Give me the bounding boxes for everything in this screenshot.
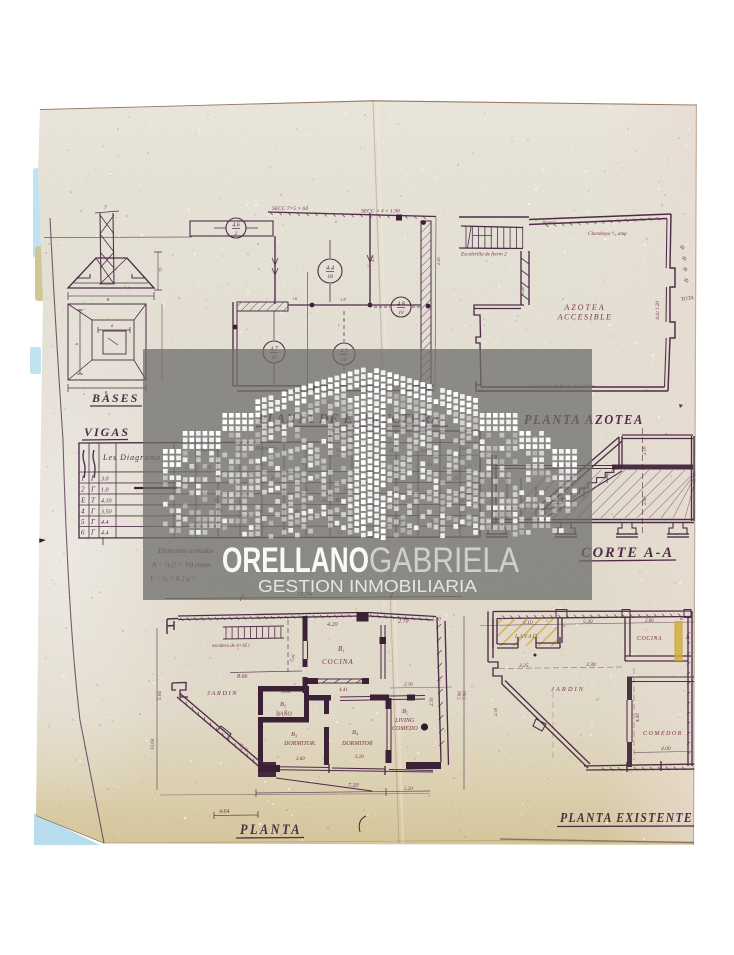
svg-text:3.0: 3.0 <box>100 477 109 483</box>
svg-text:COMEDOR: COMEDOR <box>643 731 683 737</box>
svg-text:5.10: 5.10 <box>523 620 533 626</box>
svg-text:BASES: BASES <box>91 391 139 405</box>
svg-text:5: 5 <box>81 518 85 526</box>
svg-text:4.4: 4.4 <box>101 519 109 526</box>
svg-text:2.80: 2.80 <box>645 619 654 624</box>
svg-text:5.30: 5.30 <box>583 619 593 625</box>
svg-text:B: B <box>107 297 110 302</box>
svg-text:1.20: 1.20 <box>521 286 526 295</box>
svg-text:2.10: 2.10 <box>643 446 648 455</box>
svg-text:A.zir 1.20: A.zir 1.20 <box>656 301 661 321</box>
svg-text:LAVAD.: LAVAD. <box>514 634 540 640</box>
svg-text:4: 4 <box>81 508 85 516</box>
svg-text:Claraboya ⁹/₉ amp: Claraboya ⁹/₉ amp <box>588 231 627 237</box>
svg-text:5.04: 5.04 <box>158 691 163 700</box>
svg-text:DORMITOR: DORMITOR <box>341 741 373 747</box>
svg-text:ACCESIBLE: ACCESIBLE <box>557 313 613 322</box>
svg-text:PLANTA EXISTENTE: PLANTA EXISTENTE <box>560 810 693 825</box>
svg-text:7.20: 7.20 <box>348 783 359 789</box>
svg-text:3.50: 3.50 <box>100 510 112 516</box>
svg-text:CORTE A-A: CORTE A-A <box>581 545 674 561</box>
svg-text:AZOTEA: AZOTEA <box>563 303 605 312</box>
svg-text:2.70: 2.70 <box>404 683 413 688</box>
svg-text:+6: +6 <box>292 296 298 301</box>
svg-text:DORMITOR.: DORMITOR. <box>283 741 316 747</box>
svg-text:1: 1 <box>81 475 85 483</box>
svg-text:2.70: 2.70 <box>398 619 409 625</box>
svg-text:4.10: 4.10 <box>101 498 112 505</box>
svg-text:4.64: 4.64 <box>219 808 230 815</box>
svg-text:75: 75 <box>158 267 163 272</box>
svg-text:4.4: 4.4 <box>101 530 109 537</box>
svg-text:B₂: B₂ <box>280 701 287 708</box>
svg-text:COCINA: COCINA <box>637 636 662 642</box>
svg-text:2.50: 2.50 <box>430 697 435 706</box>
svg-text:PLANTA: PLANTA <box>240 822 302 838</box>
svg-text:3.60: 3.60 <box>296 757 305 762</box>
svg-text:COMEDO: COMEDO <box>392 726 418 732</box>
svg-text:4.41: 4.41 <box>339 688 348 693</box>
svg-text:ORELLANO: ORELLANO <box>222 541 369 580</box>
svg-text:10: 10 <box>399 311 405 316</box>
svg-text:7.96: 7.96 <box>463 691 468 700</box>
svg-text:1.8: 1.8 <box>340 297 346 302</box>
svg-text:B₅: B₅ <box>402 708 408 715</box>
svg-text:GABRIELA: GABRIELA <box>369 541 520 580</box>
svg-text:4.6: 4.6 <box>232 222 240 229</box>
svg-text:2: 2 <box>81 486 85 494</box>
svg-text:BAÑO: BAÑO <box>276 710 292 718</box>
svg-text:2.20: 2.20 <box>404 787 413 792</box>
svg-text:10.60: 10.60 <box>151 738 156 750</box>
svg-text:Escalerilla de fierro 2: Escalerilla de fierro 2 <box>460 251 507 258</box>
svg-text:JARDIN: JARDIN <box>551 686 585 693</box>
svg-text:COCINA: COCINA <box>322 658 354 666</box>
svg-text:3.20: 3.20 <box>355 755 364 760</box>
svg-text:E: E <box>80 497 86 505</box>
svg-text:2.58: 2.58 <box>493 707 498 716</box>
svg-text:4.00: 4.00 <box>661 745 671 752</box>
svg-text:JARDIN: JARDIN <box>207 690 238 697</box>
svg-text:2.60: 2.60 <box>643 496 648 505</box>
svg-text:4.8: 4.8 <box>397 301 405 308</box>
svg-text:4.5: 4.5 <box>370 256 375 262</box>
svg-text:4.4: 4.4 <box>326 265 335 272</box>
svg-text:4.48: 4.48 <box>636 713 641 722</box>
svg-text:B₃: B₃ <box>291 731 297 738</box>
svg-text:4.20: 4.20 <box>327 621 338 628</box>
svg-text:8.66: 8.66 <box>237 674 248 680</box>
svg-text:LIVING: LIVING <box>394 718 415 724</box>
svg-text:GESTION INMOBILIARIA: GESTION INMOBILIARIA <box>258 576 477 596</box>
svg-text:1.0: 1.0 <box>101 488 109 494</box>
svg-text:B₁: B₁ <box>338 645 345 653</box>
svg-text:SECC × 4 × 1.90: SECC × 4 × 1.90 <box>361 208 400 215</box>
svg-text:B: B <box>680 616 683 621</box>
svg-text:SECC 7×5 × 64: SECC 7×5 × 64 <box>272 205 308 212</box>
svg-text:3.30: 3.30 <box>585 662 596 668</box>
svg-text:escalera de 4×16 l: escalera de 4×16 l <box>212 644 250 649</box>
svg-text:VIGAS: VIGAS <box>84 425 130 439</box>
svg-text:6: 6 <box>81 529 85 537</box>
svg-text:18: 18 <box>327 274 333 280</box>
svg-text:B₄: B₄ <box>352 729 359 736</box>
svg-text:Antena: Antena <box>541 221 557 226</box>
svg-text:3.25: 3.25 <box>518 663 529 669</box>
svg-text:2.45: 2.45 <box>436 256 441 265</box>
